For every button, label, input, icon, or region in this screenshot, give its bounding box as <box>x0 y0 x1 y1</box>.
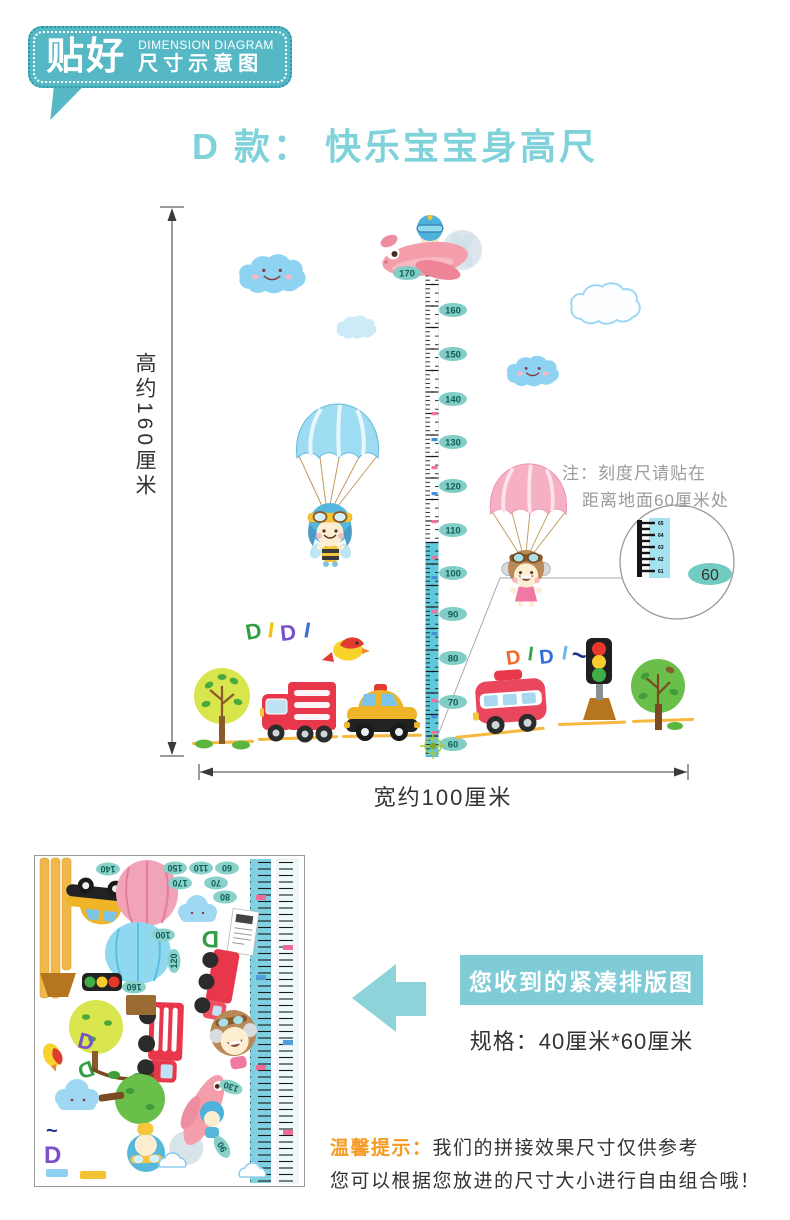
left-arrow <box>350 960 430 1044</box>
svg-text:I: I <box>526 643 535 666</box>
cloud-smiling-left <box>239 254 305 293</box>
magnifier-detail: 65 64 63 62 61 60 <box>620 505 734 619</box>
height-arrow-down <box>168 742 177 755</box>
page-title: D 款： 快乐宝宝身高尺 <box>0 118 790 170</box>
bird-icon <box>322 637 370 662</box>
ruler-label-130: 130 <box>445 438 461 449</box>
note-line-1: 注：刻度尺请贴在 <box>562 460 729 487</box>
width-dimension-label: 宽约100厘米 <box>293 780 593 812</box>
height-dimension-line <box>160 207 184 756</box>
svg-text:70: 70 <box>211 878 221 888</box>
tips-label: 温馨提示： <box>330 1138 433 1159</box>
sheet-chip-blue <box>46 1169 68 1177</box>
ruler-label-170: 170 <box>399 269 415 280</box>
magnifier-tick-64: 64 <box>658 533 664 539</box>
parachutist-pink <box>490 464 566 607</box>
brand-text: 贴好 <box>46 38 126 76</box>
width-arrow-left <box>200 768 213 777</box>
magnifier-value: 60 <box>701 567 719 584</box>
sheet-letter-d-green: D <box>202 925 219 952</box>
ruler-label-160: 160 <box>445 306 461 317</box>
svg-text:160: 160 <box>126 982 141 992</box>
didi-text-left: D I D I <box>244 617 313 646</box>
ruler-label-80: 80 <box>448 654 459 665</box>
warm-tips: 温馨提示：我们的拼接效果尺寸仅供参考 您可以根据您放进的尺寸大小进行自由组合哦！ <box>330 1132 790 1198</box>
height-dimension-label: 高约160厘米 <box>129 352 159 572</box>
received-layout-banner: 您收到的紧凑排版图 <box>460 955 703 1005</box>
sheet-barcode-label <box>227 908 259 955</box>
svg-text:D: D <box>279 619 297 646</box>
spec-text: 规格：40厘米*60厘米 <box>430 1024 733 1056</box>
cloud-small <box>337 315 377 338</box>
sheet-chip-yellow <box>80 1171 106 1179</box>
magnifier-tick-63: 63 <box>658 545 664 551</box>
ruler-label-140: 140 <box>445 395 461 406</box>
height-arrow-up <box>168 208 177 221</box>
placement-note: 注：刻度尺请贴在 距离地面60厘米处 <box>562 460 729 514</box>
width-arrow-right <box>674 768 687 777</box>
didi-text-right: D I D I ~ <box>505 639 590 672</box>
sheet-brown-rect <box>126 995 156 1015</box>
width-dimension-line <box>199 764 688 780</box>
svg-text:60: 60 <box>222 863 232 873</box>
ruler-label-100: 100 <box>445 569 461 580</box>
badge-subtitle-en: DIMENSION DIAGRAM <box>138 38 274 52</box>
svg-text:I: I <box>266 617 276 643</box>
compact-layout-sheet: D <box>34 855 305 1187</box>
badge-speech-tail <box>50 88 81 120</box>
sheet-tilde: ~ <box>46 1120 58 1142</box>
svg-text:80: 80 <box>220 892 230 902</box>
svg-text:110: 110 <box>194 863 209 873</box>
cloud-smiling-right <box>507 356 559 387</box>
magnifier-tick-65: 65 <box>658 521 664 527</box>
taxi <box>344 684 420 741</box>
tips-line-2: 您可以根据您放进的尺寸大小进行自由组合哦！ <box>330 1165 790 1198</box>
height-ruler <box>426 262 439 757</box>
tips-text-1: 我们的拼接效果尺寸仅供参考 <box>433 1138 700 1159</box>
tips-line-1: 温馨提示：我们的拼接效果尺寸仅供参考 <box>330 1132 790 1165</box>
parachutist-blue <box>297 404 379 567</box>
svg-text:140: 140 <box>100 864 115 874</box>
bus <box>470 668 548 736</box>
svg-text:150: 150 <box>167 863 182 873</box>
svg-text:D: D <box>244 618 264 645</box>
ruler-label-60: 60 <box>448 740 459 751</box>
magnifier-tick-62: 62 <box>658 557 664 563</box>
svg-text:100: 100 <box>155 930 170 940</box>
ruler-label-90: 90 <box>448 610 459 621</box>
svg-text:120: 120 <box>169 953 179 968</box>
traffic-light <box>583 638 616 720</box>
fire-truck <box>260 682 336 743</box>
svg-text:170: 170 <box>172 878 187 888</box>
sheet-letter-d-purple2: D <box>44 1142 61 1169</box>
crosshair-60-mark <box>420 733 446 759</box>
svg-text:D: D <box>505 646 522 670</box>
badge-subtitle-cn: 尺寸示意图 <box>138 52 274 76</box>
svg-text:I: I <box>302 617 312 643</box>
tree-yellow <box>194 668 250 750</box>
note-line-2: 距离地面60厘米处 <box>562 487 729 514</box>
ruler-label-150: 150 <box>445 350 461 361</box>
magnifier-tick-61: 61 <box>658 569 664 575</box>
svg-text:I: I <box>560 642 569 665</box>
dimension-diagram-badge: 贴好 DIMENSION DIAGRAM 尺寸示意图 <box>28 26 292 88</box>
ruler-label-120: 120 <box>445 482 461 493</box>
cloud-outline-right <box>571 283 640 323</box>
svg-text:D: D <box>538 646 555 669</box>
ruler-label-110: 110 <box>445 526 460 537</box>
sheet-traffic-light <box>82 973 122 991</box>
ruler-label-70: 70 <box>448 698 459 709</box>
